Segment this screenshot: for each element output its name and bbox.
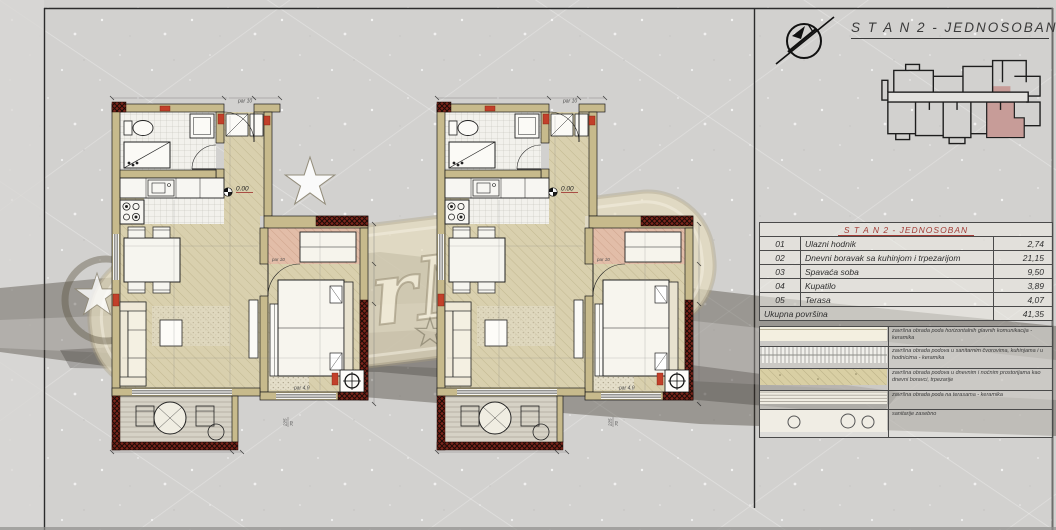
legend-swatch-hlines bbox=[760, 391, 889, 410]
row-number: 04 bbox=[760, 279, 801, 293]
legend-swatch-grid bbox=[760, 347, 889, 369]
legend-row: završna obrada poda horizontalnih glavni… bbox=[760, 327, 1053, 347]
room-name: Kupatilo bbox=[801, 279, 994, 293]
floor-plan-left bbox=[110, 96, 376, 454]
legend-swatch-plain bbox=[760, 327, 889, 347]
table-row: 02 Dnevni boravak sa kuhinjom i trpezari… bbox=[760, 251, 1053, 265]
legend-text: završna obrada poda na terasama - kerami… bbox=[889, 391, 1053, 410]
row-number: 01 bbox=[760, 237, 801, 251]
table-total-row: Ukupna površina 41,35 bbox=[760, 307, 1053, 321]
legend-text: sanitarije zasebno bbox=[889, 410, 1053, 438]
row-number: 03 bbox=[760, 265, 801, 279]
legend-row: završna obrada podova u dnevnim i noćnim… bbox=[760, 369, 1053, 391]
legend-swatch-circles bbox=[760, 410, 889, 438]
row-number: 02 bbox=[760, 251, 801, 265]
total-area: 41,35 bbox=[994, 307, 1053, 321]
drawing-sheet: WaterMark bbox=[0, 0, 1056, 530]
room-name: Spavaća soba bbox=[801, 265, 994, 279]
legend-row: završna obrada podova u sanitarnim čvoro… bbox=[760, 347, 1053, 369]
legend-text: završna obrada poda horizontalnih glavni… bbox=[889, 327, 1053, 347]
legend-swatch-sand bbox=[760, 369, 889, 391]
legend-row: završna obrada poda na terasama - kerami… bbox=[760, 391, 1053, 410]
legend-row: sanitarije zasebno bbox=[760, 410, 1053, 438]
table-row: 03 Spavaća soba 9,50 bbox=[760, 265, 1053, 279]
legend-text: završna obrada podova u sanitarnim čvoro… bbox=[889, 347, 1053, 369]
sheet-title: S T A N 2 - JEDNOSOBAN bbox=[851, 20, 1049, 39]
table-header: S T A N 2 - JEDNOSOBAN bbox=[760, 223, 1053, 237]
room-area: 4,07 bbox=[994, 293, 1053, 307]
floor-plans: 0.00 bbox=[50, 66, 770, 506]
table-row: 05 Terasa 4,07 bbox=[760, 293, 1053, 307]
floor-plan-right bbox=[435, 96, 701, 454]
total-label: Ukupna površina bbox=[760, 307, 994, 321]
room-name: Dnevni boravak sa kuhinjom i trpezarijom bbox=[801, 251, 994, 265]
table-header-row: S T A N 2 - JEDNOSOBAN bbox=[760, 223, 1053, 237]
north-arrow-icon bbox=[774, 12, 836, 70]
room-area: 2,74 bbox=[994, 237, 1053, 251]
room-area: 3,89 bbox=[994, 279, 1053, 293]
key-plan-highlight bbox=[987, 102, 1025, 138]
room-name: Terasa bbox=[801, 293, 994, 307]
table-row: 01 Ulazni hodnik 2,74 bbox=[760, 237, 1053, 251]
area-table: S T A N 2 - JEDNOSOBAN 01 Ulazni hodnik … bbox=[759, 222, 1053, 321]
row-number: 05 bbox=[760, 293, 801, 307]
room-area: 9,50 bbox=[994, 265, 1053, 279]
finish-legend: završna obrada poda horizontalnih glavni… bbox=[759, 326, 1053, 438]
room-area: 21,15 bbox=[994, 251, 1053, 265]
room-name: Ulazni hodnik bbox=[801, 237, 994, 251]
key-plan bbox=[876, 56, 1044, 151]
table-row: 04 Kupatilo 3,89 bbox=[760, 279, 1053, 293]
legend-text: završna obrada podova u dnevnim i noćnim… bbox=[889, 369, 1053, 391]
